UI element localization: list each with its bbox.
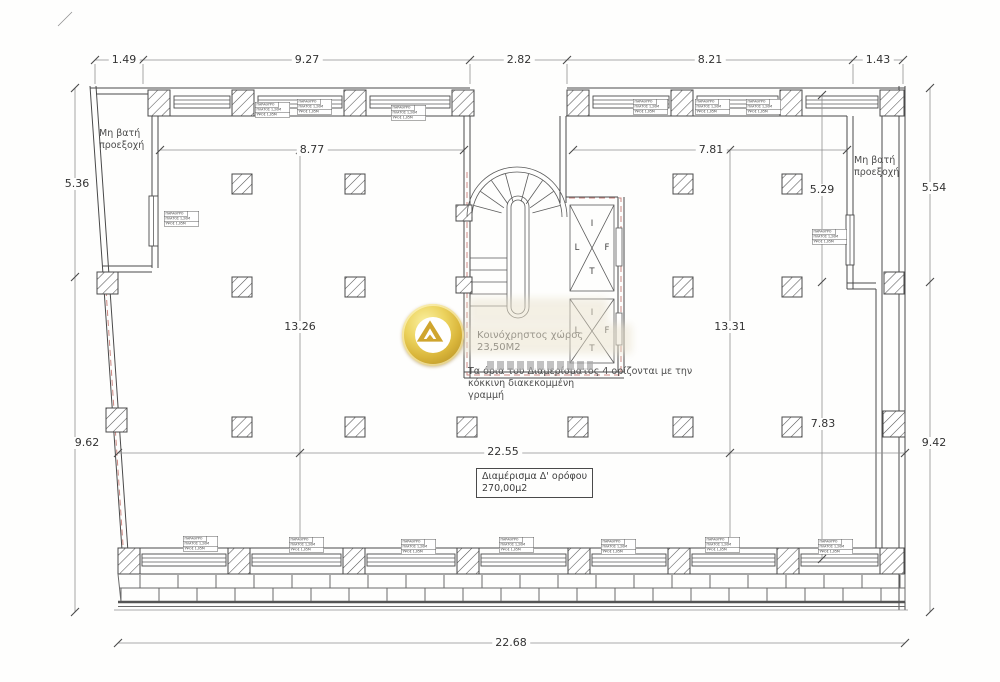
window-tag: ΠΑΡΑΘΥΡΟΠΛΑΤΟΣ 1,20ΜΥΨΟΣ 1,05Μ (164, 211, 199, 227)
floor-plan-canvas: 1.49 9.27 2.82 8.21 1.43 5.36 9.62 5.54 … (0, 0, 1000, 682)
note-line: προεξοχή (854, 167, 899, 179)
watermark-pixel-strip (487, 361, 593, 370)
column-hatched (343, 548, 365, 574)
apartment-label: Διαμέρισμα Δ' ορόφου 270,00μ2 (476, 468, 593, 498)
dim-label: 22.55 (484, 446, 522, 458)
column-hatched (673, 277, 693, 297)
column-hatched (671, 90, 693, 116)
watermark-ghost-text (468, 298, 608, 324)
window-tag: ΠΑΡΑΘΥΡΟΠΛΑΤΟΣ 1,20ΜΥΨΟΣ 1,05Μ (297, 99, 332, 115)
dim-label: 22.68 (492, 637, 530, 649)
column-hatched (883, 411, 905, 437)
window-tag: ΠΑΡΑΘΥΡΟΠΛΑΤΟΣ 1,20ΜΥΨΟΣ 1,05Μ (401, 539, 436, 555)
dim-label: 2.82 (504, 54, 535, 66)
dim-label: 9.62 (72, 437, 103, 449)
note-line: προεξοχή (99, 140, 144, 152)
window-strip (174, 96, 230, 108)
column-hatched (345, 174, 365, 194)
column-hatched (118, 548, 140, 574)
column-hatched (457, 417, 477, 437)
window-tag-line: ΥΨΟΣ 1,05Μ (184, 547, 218, 552)
window-tag-line: ΥΨΟΣ 1,05Μ (256, 113, 290, 118)
column-hatched (456, 205, 472, 221)
window-strip (692, 554, 775, 566)
column-hatched (97, 272, 118, 294)
note-no-access-right: Μη βατή προεξοχή (854, 155, 899, 179)
dim-label: 8.21 (695, 54, 726, 66)
note-no-access-left: Μη βατή προεξοχή (99, 128, 144, 152)
dim-label: 1.43 (863, 54, 894, 66)
column-hatched (232, 277, 252, 297)
column-hatched (232, 174, 252, 194)
window-tag-line: ΥΨΟΣ 1,05Μ (696, 110, 730, 115)
dim-label: 9.42 (919, 437, 950, 449)
window-tag-line: ΥΨΟΣ 1,05Μ (290, 548, 324, 553)
window-strip (252, 554, 341, 566)
window-tag: ΠΑΡΑΘΥΡΟΠΛΑΤΟΣ 1,20ΜΥΨΟΣ 1,05Μ (255, 102, 290, 118)
window-tag-line: ΥΨΟΣ 1,05Μ (813, 240, 847, 245)
column-hatched (568, 548, 590, 574)
window-tag: ΠΑΡΑΘΥΡΟΠΛΑΤΟΣ 1,20ΜΥΨΟΣ 1,05Μ (812, 229, 847, 245)
column-hatched (456, 277, 472, 293)
column-hatched (457, 548, 479, 574)
window-tag: ΠΑΡΑΘΥΡΟΠΛΑΤΟΣ 1,20ΜΥΨΟΣ 1,05Μ (818, 539, 853, 555)
dim-label: 1.49 (109, 54, 140, 66)
window-tag-line: ΥΨΟΣ 1,05Μ (747, 110, 781, 115)
lift-letter: F (605, 243, 610, 253)
dim-label: 8.77 (297, 144, 328, 156)
dim-label: 9.27 (292, 54, 323, 66)
column-hatched (344, 90, 366, 116)
lift-letter: L (575, 243, 580, 253)
dim-label: 7.81 (696, 144, 727, 156)
column-hatched (884, 272, 904, 294)
column-hatched (782, 174, 802, 194)
column-hatched (106, 408, 127, 432)
column-hatched (228, 548, 250, 574)
dim-label: 5.29 (807, 184, 838, 196)
dim-label: 5.36 (62, 178, 93, 190)
window-tag: ΠΑΡΑΘΥΡΟΠΛΑΤΟΣ 1,20ΜΥΨΟΣ 1,05Μ (391, 105, 426, 121)
note-line: γραμμή (468, 390, 692, 402)
column-hatched (777, 548, 799, 574)
lift-letter: I (591, 219, 594, 229)
column-hatched (345, 417, 365, 437)
note-line: κόκκινη διακεκομμένη (468, 378, 692, 390)
window-tag: ΠΑΡΑΘΥΡΟΠΛΑΤΟΣ 1,20ΜΥΨΟΣ 1,05Μ (705, 537, 740, 553)
window-strip (592, 554, 666, 566)
window-tag: ΠΑΡΑΘΥΡΟΠΛΑΤΟΣ 1,20ΜΥΨΟΣ 1,05Μ (289, 537, 324, 553)
window-strip (801, 554, 878, 566)
dim-label: 13.26 (281, 321, 319, 333)
column-hatched (780, 90, 802, 116)
watermark-ghost-text (452, 324, 632, 354)
window-tag-line: ΥΨΟΣ 1,05Μ (165, 222, 199, 227)
window-tag-line: ΥΨΟΣ 1,05Μ (402, 550, 436, 555)
window-tag-line: ΥΨΟΣ 1,05Μ (602, 550, 636, 555)
dim-label: 5.54 (919, 182, 950, 194)
column-hatched (668, 548, 690, 574)
window-tag-line: ΥΨΟΣ 1,05Μ (634, 110, 668, 115)
column-hatched (880, 548, 904, 574)
lift-letter: T (589, 267, 594, 277)
watermark-coin (402, 304, 464, 366)
column-hatched (148, 90, 170, 116)
apartment-area: 270,00μ2 (482, 483, 587, 495)
dim-label: 7.83 (808, 418, 839, 430)
window-tag: ΠΑΡΑΘΥΡΟΠΛΑΤΟΣ 1,20ΜΥΨΟΣ 1,05Μ (499, 537, 534, 553)
window-strip (367, 554, 455, 566)
staircase (467, 167, 567, 318)
column-hatched (232, 417, 252, 437)
note-line: Μη βατή (854, 155, 899, 167)
window-tag: ΠΑΡΑΘΥΡΟΠΛΑΤΟΣ 1,20ΜΥΨΟΣ 1,05Μ (695, 99, 730, 115)
apartment-name: Διαμέρισμα Δ' ορόφου (482, 471, 587, 483)
balcony-paving (114, 574, 908, 610)
window-tag: ΠΑΡΑΘΥΡΟΠΛΑΤΟΣ 1,20ΜΥΨΟΣ 1,05Μ (183, 536, 218, 552)
column-hatched (452, 90, 474, 116)
column-hatched (567, 90, 589, 116)
window-tag-line: ΥΨΟΣ 1,05Μ (706, 548, 740, 553)
column-hatched (880, 90, 904, 116)
window-strip (481, 554, 566, 566)
watermark-coin-core (415, 317, 451, 353)
note-line: Μη βατή (99, 128, 144, 140)
window-tag: ΠΑΡΑΘΥΡΟΠΛΑΤΟΣ 1,20ΜΥΨΟΣ 1,05Μ (633, 99, 668, 115)
window-strip (806, 96, 878, 108)
column-hatched (782, 417, 802, 437)
pyramid-logo-icon (415, 317, 445, 345)
window-tag-line: ΥΨΟΣ 1,05Μ (392, 116, 426, 121)
window-tag-line: ΥΨΟΣ 1,05Μ (500, 548, 534, 553)
window-tag-line: ΥΨΟΣ 1,05Μ (819, 550, 853, 555)
window-strip (142, 554, 226, 566)
window-tag: ΠΑΡΑΘΥΡΟΠΛΑΤΟΣ 1,20ΜΥΨΟΣ 1,05Μ (746, 99, 781, 115)
note-boundary: Τα όρια του Διαμερίσματος 4 ορίζονται με… (468, 366, 692, 402)
column-hatched (345, 277, 365, 297)
column-hatched (673, 417, 693, 437)
column-hatched (232, 90, 254, 116)
window-tag: ΠΑΡΑΘΥΡΟΠΛΑΤΟΣ 1,20ΜΥΨΟΣ 1,05Μ (601, 539, 636, 555)
column-hatched (782, 277, 802, 297)
column-hatched (568, 417, 588, 437)
dim-label: 13.31 (711, 321, 749, 333)
window-tag-line: ΥΨΟΣ 1,05Μ (298, 110, 332, 115)
column-hatched (673, 174, 693, 194)
